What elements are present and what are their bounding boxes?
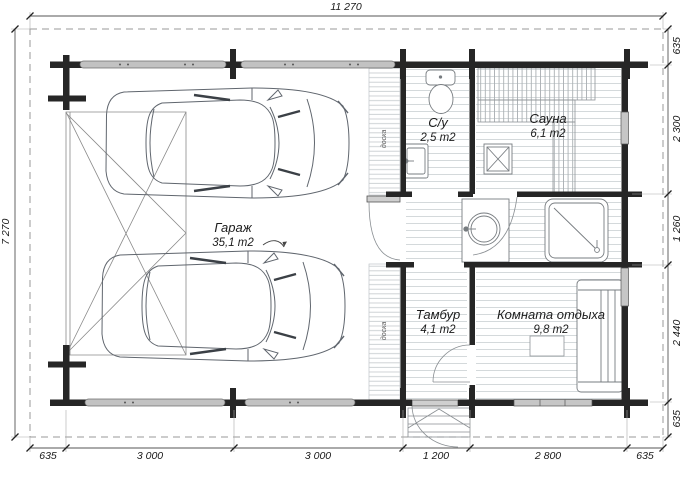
room-label-sauna: Сауна: [498, 112, 598, 126]
floor-plan-page: 11 270 7 270 635 2 300 1 260 2 440 635 6…: [0, 0, 700, 488]
plank-note: доска: [381, 121, 389, 157]
floor-plan-drawing: [0, 0, 700, 488]
dim-bottom: 635: [610, 451, 680, 463]
shower-tray-icon: [545, 199, 608, 262]
car-icon: [102, 251, 345, 361]
sink-icon: [404, 144, 428, 178]
washbasin-icon: [462, 199, 509, 262]
room-label-wc: С/у: [398, 116, 478, 130]
table-icon: [530, 336, 564, 356]
dim-right: 635: [672, 389, 684, 449]
room-label-lounge: Комната отдыха: [471, 308, 631, 322]
lounge-bottom-window: [514, 400, 592, 407]
room-area-wc: 2,5 m2: [398, 132, 478, 145]
dim-right: 2 300: [672, 99, 684, 159]
dim-bottom: 635: [13, 451, 83, 463]
dim-right: 1 260: [672, 199, 684, 259]
dim-right: 635: [672, 16, 684, 76]
dim-right: 2 440: [672, 303, 684, 363]
car-icon: [106, 88, 349, 198]
dim-bottom: 3 000: [283, 451, 353, 463]
lounge-window: [621, 268, 629, 306]
porch-steps: [408, 408, 470, 437]
room-area-garage: 35,1 m2: [173, 237, 293, 250]
room-area-sauna: 6,1 m2: [498, 128, 598, 141]
dim-bottom: 1 200: [401, 451, 471, 463]
room-area-lounge: 9,8 m2: [471, 324, 631, 337]
plank-note: доска: [381, 313, 389, 349]
dim-bottom: 2 800: [513, 451, 583, 463]
sauna-stove-icon: [484, 144, 512, 174]
dim-total-height: 7 270: [1, 202, 13, 262]
dim-bottom: 3 000: [115, 451, 185, 463]
garage-gate-icon: [66, 112, 186, 355]
room-label-garage: Гараж: [173, 221, 293, 235]
dim-total-width: 11 270: [296, 2, 396, 14]
sauna-window: [621, 112, 629, 144]
